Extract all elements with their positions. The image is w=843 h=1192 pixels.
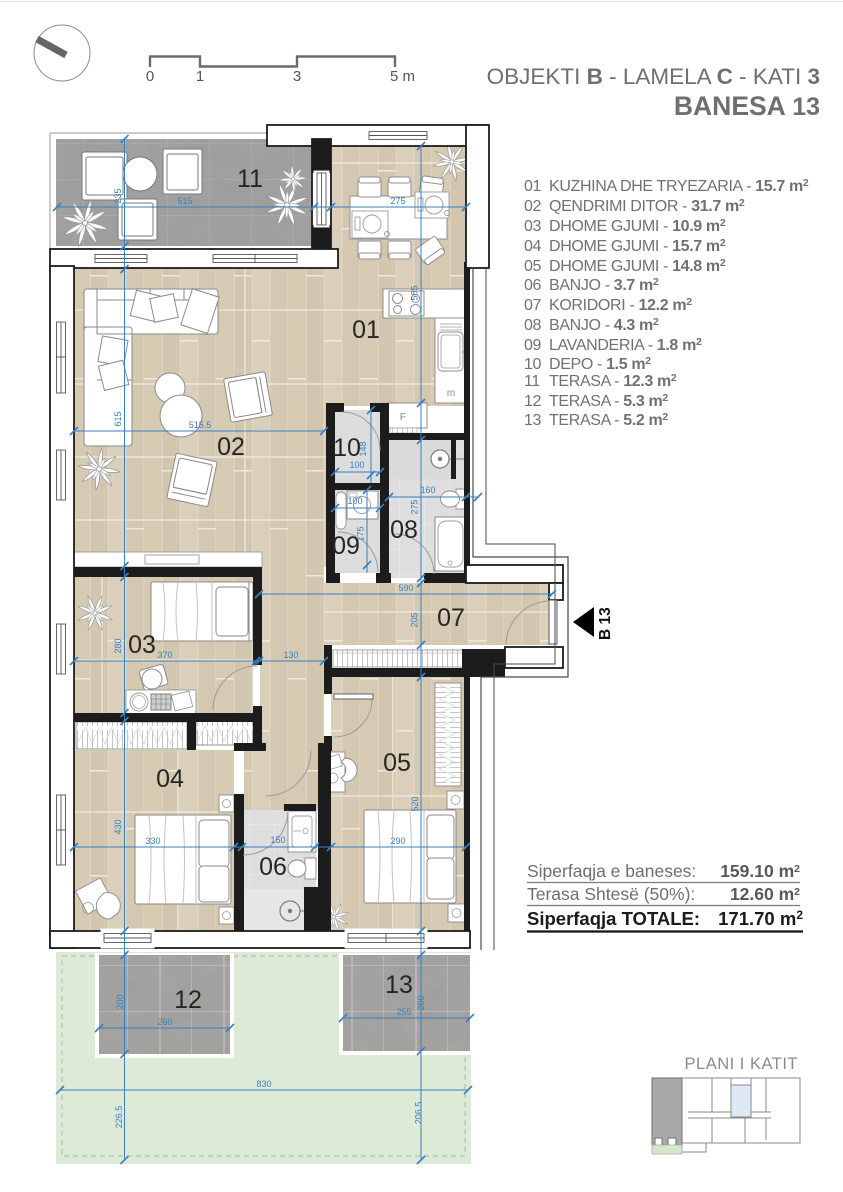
svg-text:01: 01 — [352, 316, 380, 344]
svg-text:BANJO - 3.7 m2: BANJO - 3.7 m2 — [549, 276, 659, 294]
svg-text:QENDRIMI DITOR - 31.7 m2: QENDRIMI DITOR - 31.7 m2 — [549, 197, 745, 215]
svg-text:05: 05 — [383, 749, 411, 777]
svg-text:275: 275 — [390, 196, 405, 206]
svg-text:615: 615 — [113, 411, 123, 426]
svg-text:150: 150 — [270, 835, 285, 845]
svg-text:3: 3 — [293, 68, 301, 85]
svg-text:07: 07 — [437, 604, 465, 632]
svg-text:370: 370 — [157, 650, 172, 660]
svg-text:5 m: 5 m — [390, 68, 415, 85]
svg-text:12: 12 — [174, 986, 202, 1014]
svg-text:KORIDORI - 12.2 m2: KORIDORI - 12.2 m2 — [549, 296, 692, 314]
svg-text:830: 830 — [256, 1079, 271, 1089]
svg-text:515: 515 — [177, 196, 192, 206]
svg-text:200: 200 — [115, 994, 125, 1009]
svg-text:KUZHINA DHE TRYEZARIA - 15.7 m: KUZHINA DHE TRYEZARIA - 15.7 m2 — [549, 177, 809, 195]
svg-text:200: 200 — [416, 995, 426, 1010]
svg-text:TERASA - 12.3 m2: TERASA - 12.3 m2 — [549, 372, 677, 390]
svg-text:235: 235 — [113, 188, 123, 203]
svg-text:1: 1 — [196, 68, 204, 85]
svg-text:515.5: 515.5 — [189, 420, 212, 430]
svg-text:09: 09 — [332, 532, 360, 560]
svg-text:11: 11 — [524, 373, 540, 390]
svg-text:DHOME GJUMI - 10.9 m2: DHOME GJUMI - 10.9 m2 — [549, 217, 726, 235]
svg-text:10: 10 — [524, 356, 542, 373]
svg-text:520: 520 — [410, 796, 420, 811]
svg-text:B 13: B 13 — [597, 607, 614, 640]
svg-text:590: 590 — [398, 583, 413, 593]
svg-text:m: m — [447, 388, 455, 399]
svg-text:06: 06 — [259, 853, 287, 881]
svg-text:04: 04 — [524, 238, 542, 255]
svg-text:13: 13 — [385, 971, 413, 999]
svg-text:F: F — [400, 411, 406, 423]
svg-text:206.5: 206.5 — [414, 1102, 424, 1125]
svg-text:08: 08 — [390, 516, 418, 544]
svg-text:05: 05 — [524, 258, 542, 275]
svg-text:430: 430 — [113, 819, 123, 834]
svg-text:TERASA - 5.3 m2: TERASA - 5.3 m2 — [549, 392, 668, 410]
svg-text:09: 09 — [524, 337, 542, 354]
svg-text:330: 330 — [145, 836, 160, 846]
svg-text:03: 03 — [524, 218, 542, 235]
svg-text:DEPO - 1.5 m2: DEPO - 1.5 m2 — [549, 355, 651, 373]
svg-text:PLANI I KATIT: PLANI I KATIT — [685, 1055, 798, 1073]
svg-text:11: 11 — [237, 165, 263, 193]
svg-text:255: 255 — [396, 1007, 411, 1017]
svg-text:06: 06 — [524, 277, 542, 294]
svg-text:205: 205 — [410, 612, 420, 627]
svg-text:226.5: 226.5 — [114, 1106, 124, 1129]
svg-text:OBJEKTI B - LAMELA C - KATI 3: OBJEKTI B - LAMELA C - KATI 3 — [487, 64, 820, 89]
svg-text:01: 01 — [524, 178, 542, 195]
svg-text:130: 130 — [283, 650, 298, 660]
svg-text:100: 100 — [347, 496, 362, 506]
svg-text:TERASA - 5.2 m2: TERASA - 5.2 m2 — [549, 411, 668, 429]
svg-text:BANESA 13: BANESA 13 — [674, 91, 820, 121]
svg-text:BANJO - 4.3 m2: BANJO - 4.3 m2 — [549, 316, 659, 334]
svg-text:08: 08 — [524, 317, 542, 334]
svg-text:DHOME GJUMI - 14.8 m2: DHOME GJUMI - 14.8 m2 — [549, 257, 726, 275]
svg-text:171.70 m2: 171.70 m2 — [718, 908, 803, 929]
svg-text:07: 07 — [524, 297, 542, 314]
svg-text:260: 260 — [157, 1017, 172, 1027]
svg-text:280: 280 — [113, 638, 123, 653]
svg-text:03: 03 — [128, 631, 156, 659]
svg-text:02: 02 — [524, 198, 542, 215]
svg-text:LAVANDERIA - 1.8 m2: LAVANDERIA - 1.8 m2 — [549, 336, 702, 354]
svg-text:13: 13 — [524, 412, 542, 429]
svg-text:02: 02 — [217, 433, 245, 461]
svg-text:04: 04 — [156, 765, 184, 793]
svg-text:159.10 m2: 159.10 m2 — [720, 861, 800, 881]
svg-text:Siperfaqja TOTALE:: Siperfaqja TOTALE: — [527, 908, 700, 929]
svg-text:585: 585 — [410, 285, 420, 300]
svg-text:160: 160 — [420, 485, 435, 495]
svg-text:275: 275 — [410, 499, 420, 514]
svg-text:Siperfaqja e baneses:: Siperfaqja e baneses: — [527, 861, 696, 881]
svg-text:DHOME GJUMI - 15.7 m2: DHOME GJUMI - 15.7 m2 — [549, 237, 726, 255]
svg-text:12.60 m2: 12.60 m2 — [730, 884, 800, 904]
svg-text:0: 0 — [146, 68, 154, 85]
svg-text:10: 10 — [333, 434, 361, 462]
svg-text:12: 12 — [524, 393, 542, 410]
svg-text:290: 290 — [390, 836, 405, 846]
svg-text:Terasa Shtesë (50%):: Terasa Shtesë (50%): — [527, 884, 695, 904]
